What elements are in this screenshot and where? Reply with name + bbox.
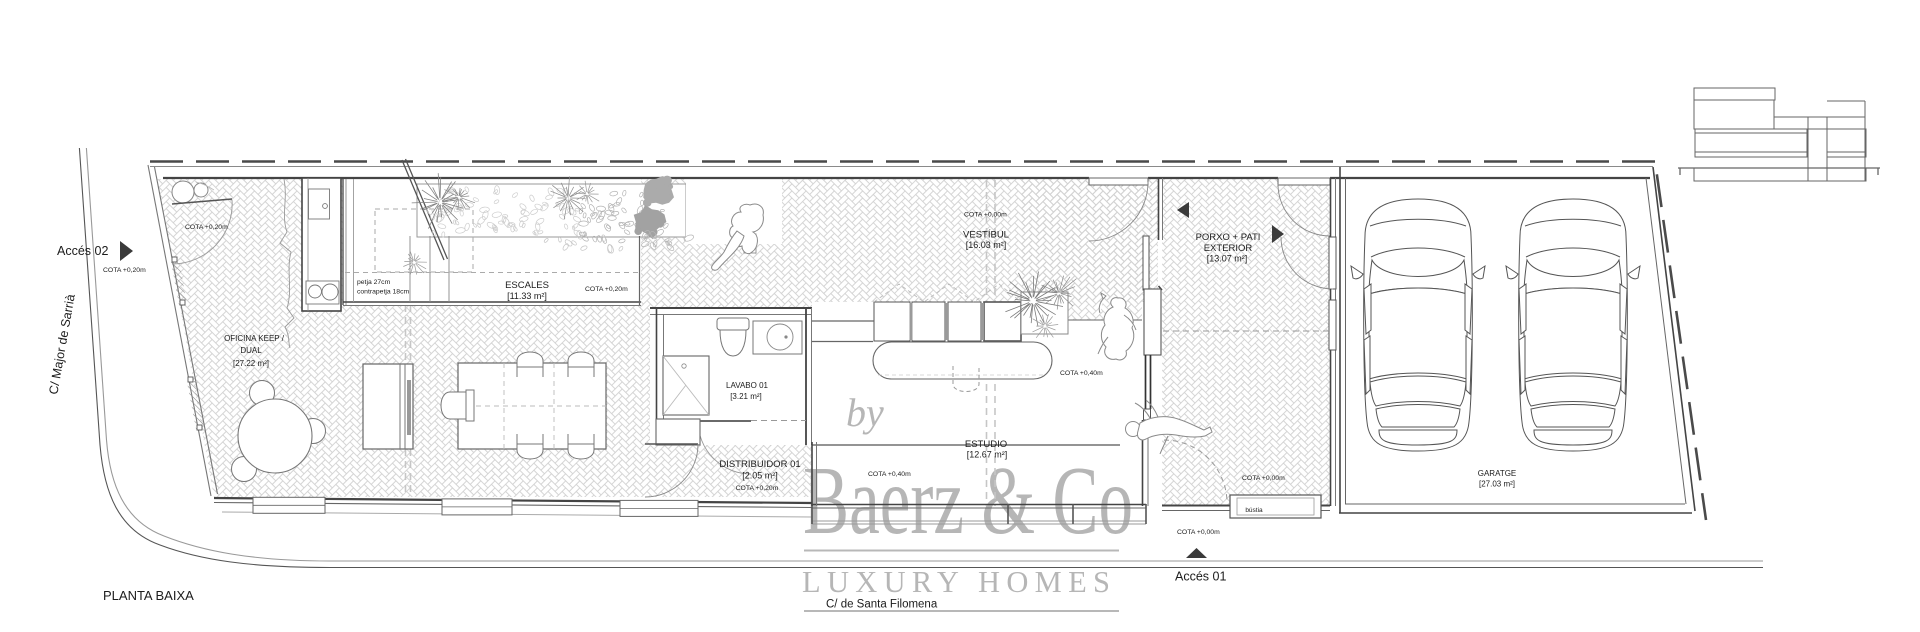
- svg-text:COTA +0,20m: COTA +0,20m: [736, 485, 779, 492]
- svg-text:COTA +0,00m: COTA +0,00m: [1242, 475, 1285, 482]
- svg-text:[3.21 m²]: [3.21 m²]: [730, 392, 762, 401]
- svg-text:Accés 02: Accés 02: [57, 244, 108, 258]
- svg-text:DISTRIBUIDOR 01: DISTRIBUIDOR 01: [719, 459, 800, 470]
- svg-text:COTA +0,20m: COTA +0,20m: [103, 267, 146, 274]
- svg-text:DUAL: DUAL: [240, 346, 262, 355]
- svg-text:VESTÍBUL: VESTÍBUL: [963, 230, 1009, 241]
- svg-text:[27.03 m²]: [27.03 m²]: [1479, 480, 1515, 489]
- svg-text:C/ de Santa Filomena: C/ de Santa Filomena: [826, 599, 938, 611]
- svg-text:Accés 01: Accés 01: [1175, 570, 1226, 584]
- svg-text:[27.22 m²]: [27.22 m²]: [233, 359, 269, 368]
- svg-text:COTA +0,00m: COTA +0,00m: [964, 212, 1007, 219]
- svg-text:[2.05 m²]: [2.05 m²]: [742, 471, 778, 481]
- svg-text:GARATGE: GARATGE: [1478, 469, 1517, 478]
- svg-text:COTA +0,40m: COTA +0,40m: [868, 471, 911, 478]
- svg-text:petja 27cm: petja 27cm: [357, 279, 391, 286]
- svg-text:PLANTA BAIXA: PLANTA BAIXA: [103, 588, 194, 603]
- svg-text:COTA +0,20m: COTA +0,20m: [185, 224, 228, 231]
- svg-text:PORXO + PATI: PORXO + PATI: [1196, 232, 1261, 243]
- svg-text:EXTERIOR: EXTERIOR: [1204, 243, 1253, 254]
- svg-text:Baerz & Co: Baerz & Co: [803, 447, 1133, 554]
- svg-text:COTA +0,00m: COTA +0,00m: [1177, 529, 1220, 536]
- svg-text:OFICINA KEEP /: OFICINA KEEP /: [224, 334, 285, 343]
- svg-text:[11.33 m²]: [11.33 m²]: [507, 291, 547, 301]
- svg-text:LUXURY HOMES: LUXURY HOMES: [802, 565, 1120, 599]
- svg-text:[12.67 m²]: [12.67 m²]: [967, 450, 1008, 460]
- svg-text:[16.03 m²]: [16.03 m²]: [966, 240, 1007, 250]
- svg-text:LAVABO 01: LAVABO 01: [726, 381, 769, 390]
- svg-text:ESCALES: ESCALES: [505, 280, 549, 291]
- svg-text:COTA +0,20m: COTA +0,20m: [585, 286, 628, 293]
- svg-text:COTA +0,40m: COTA +0,40m: [1060, 370, 1103, 377]
- svg-text:ESTUDIO: ESTUDIO: [965, 439, 1007, 450]
- svg-text:bústia: bústia: [1245, 507, 1263, 514]
- svg-text:[13.07 m²]: [13.07 m²]: [1207, 254, 1248, 264]
- svg-text:contrapetja 18cm: contrapetja 18cm: [357, 289, 409, 296]
- svg-text:by: by: [846, 390, 884, 435]
